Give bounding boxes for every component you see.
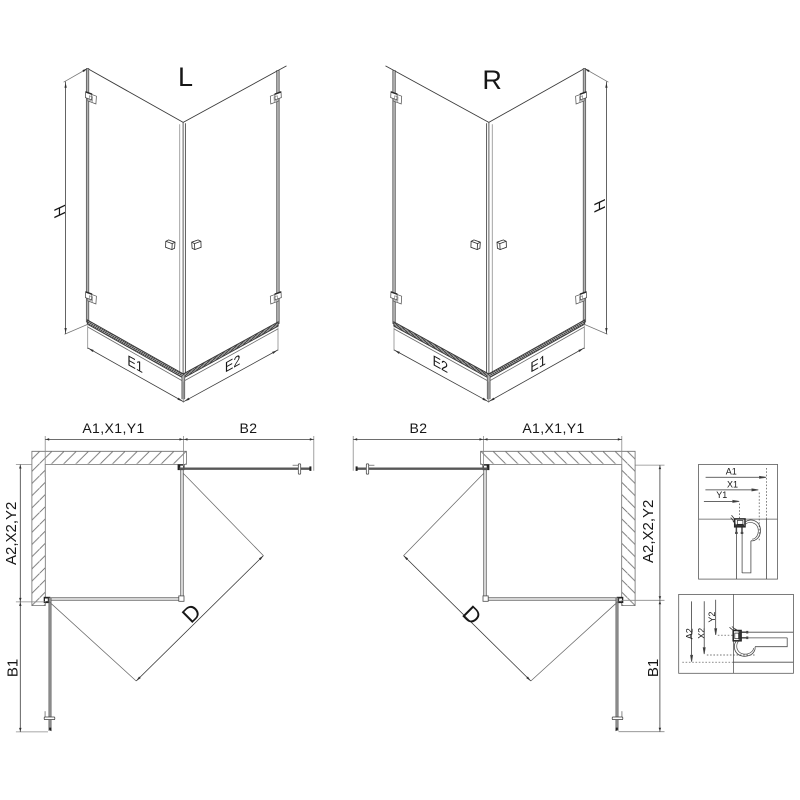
svg-text:A1,X1,Y1: A1,X1,Y1 (82, 420, 144, 436)
svg-text:L: L (178, 62, 193, 92)
svg-text:B2: B2 (240, 420, 258, 436)
svg-text:Y1: Y1 (716, 490, 727, 500)
svg-text:B1: B1 (4, 659, 21, 677)
svg-text:X2: X2 (697, 628, 707, 639)
svg-text:A2,X2,Y2: A2,X2,Y2 (3, 502, 20, 565)
svg-text:R: R (482, 65, 502, 95)
svg-text:B1: B1 (645, 659, 662, 677)
svg-text:B2: B2 (410, 420, 428, 436)
svg-text:A1: A1 (726, 467, 737, 477)
svg-text:A2: A2 (685, 628, 695, 639)
svg-text:A2,X2,Y2: A2,X2,Y2 (640, 500, 657, 563)
svg-text:A1,X1,Y1: A1,X1,Y1 (522, 420, 584, 436)
svg-text:X1: X1 (727, 480, 738, 490)
svg-text:Y2: Y2 (707, 612, 717, 623)
